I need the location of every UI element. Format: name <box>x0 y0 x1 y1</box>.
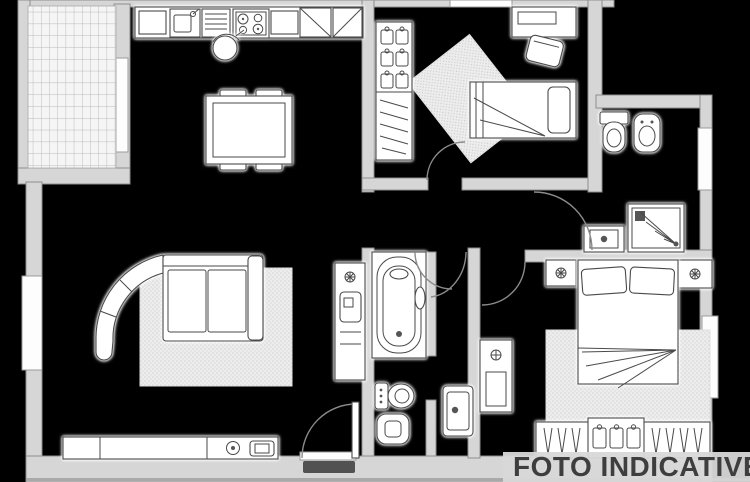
top-window <box>450 0 512 7</box>
bathroom-door-arc <box>534 192 592 250</box>
bedroom-small-wardrobe <box>376 22 412 160</box>
desk-chair <box>525 34 564 67</box>
kitchen-cabinet <box>271 11 298 34</box>
entrance-door <box>302 402 359 458</box>
bidet <box>634 114 660 152</box>
dining-table <box>206 90 292 170</box>
kitchen-counter <box>135 7 363 38</box>
kitchen-cabinet <box>139 11 166 34</box>
bidet-second <box>375 383 414 409</box>
nightstand-left <box>546 260 576 286</box>
floor-plan-image: FOTO INDICATIVE <box>0 0 750 482</box>
bathroom-washbasin <box>584 226 624 252</box>
small-illegible-text <box>303 461 355 473</box>
master-door-arc <box>482 262 525 305</box>
tall-cabinet <box>333 8 362 37</box>
toilet-second <box>377 414 409 444</box>
toilet <box>600 112 628 152</box>
bedroom-small <box>376 7 576 180</box>
floor-plan-drawing: FOTO INDICATIVE <box>0 0 750 482</box>
living-room <box>63 255 359 459</box>
tall-cabinet-laundry <box>335 263 365 380</box>
shower <box>628 204 684 252</box>
pillow <box>629 267 674 295</box>
living-room-window <box>22 276 42 370</box>
tall-cabinet <box>300 8 331 37</box>
pillow <box>548 87 570 133</box>
kitchen-sink <box>170 9 200 37</box>
balcony-tiled-floor <box>28 6 116 168</box>
tv-sideboard <box>63 437 278 459</box>
dish-rack <box>202 9 230 37</box>
bathroom-window <box>698 128 712 190</box>
nightstand-right <box>678 260 712 288</box>
entrance-threshold <box>300 452 356 460</box>
master-bedroom <box>536 260 712 458</box>
single-bed <box>470 82 576 138</box>
radiator-cabinet <box>480 340 512 412</box>
double-bed <box>578 260 678 388</box>
desk <box>512 7 576 68</box>
tv <box>250 441 274 456</box>
watermark-text: FOTO INDICATIVE <box>513 451 750 482</box>
hall-washbasin <box>443 386 473 436</box>
door-leaf <box>352 402 359 458</box>
pillow <box>581 266 627 295</box>
balcony-window <box>116 58 128 152</box>
balcony <box>28 6 116 168</box>
